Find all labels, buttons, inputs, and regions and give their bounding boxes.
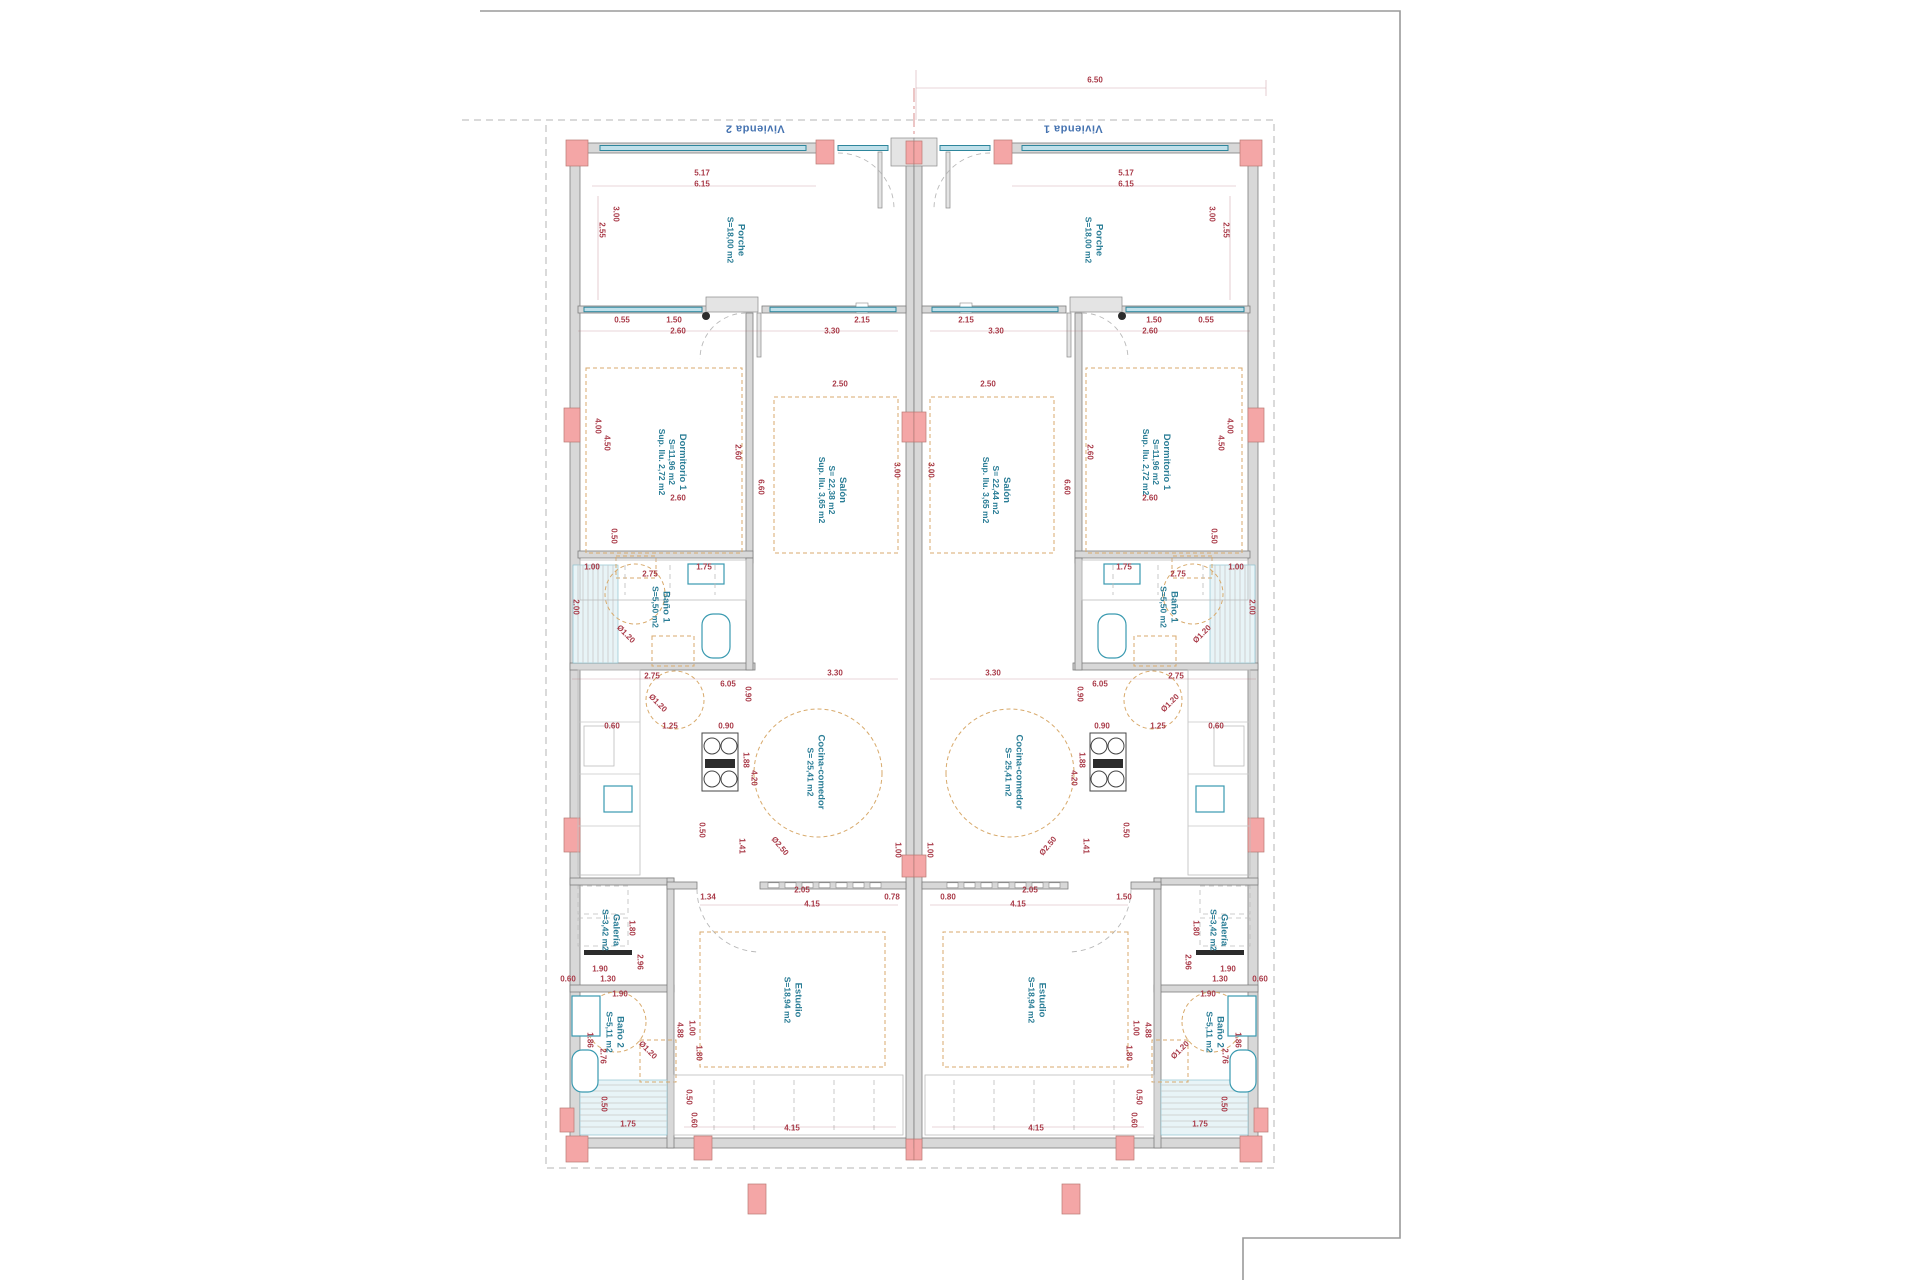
dwelling-left-geometry [560, 138, 914, 1214]
floor-plan-drawing [0, 0, 1920, 1280]
dwelling-right-geometry [914, 138, 1268, 1214]
floor-plan-sheet: Vivienda 2Vivienda 1PorcheS=18,00 m2Porc… [0, 0, 1920, 1280]
